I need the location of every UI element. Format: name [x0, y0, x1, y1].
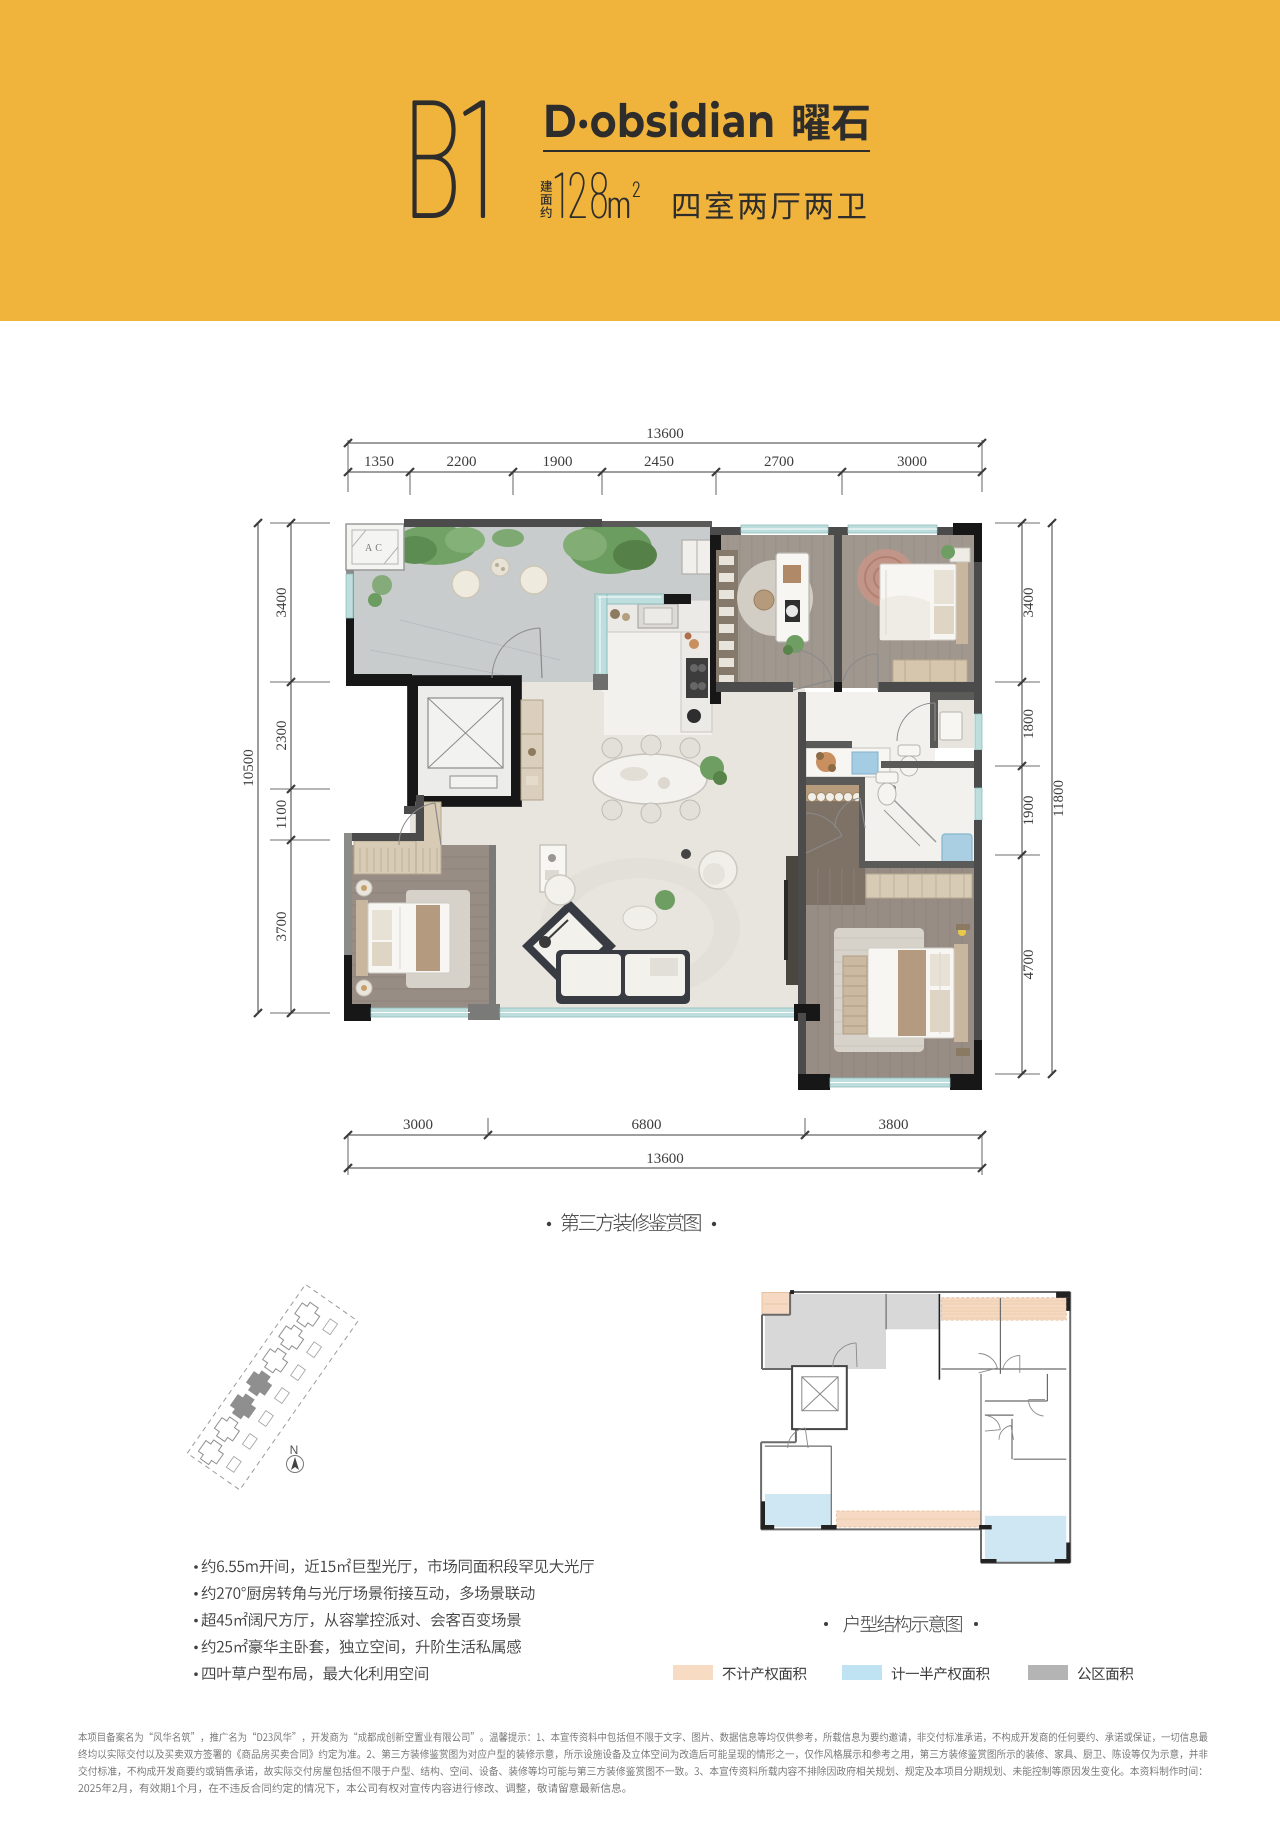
- svg-text:4700: 4700: [1021, 950, 1037, 980]
- svg-text:N: N: [290, 1443, 299, 1457]
- svg-text:3800: 3800: [879, 1117, 909, 1133]
- svg-text:2200: 2200: [447, 454, 477, 470]
- svg-text:3400: 3400: [1021, 588, 1037, 618]
- svg-text:6800: 6800: [632, 1117, 662, 1133]
- svg-text:3000: 3000: [897, 454, 927, 470]
- svg-text:13600: 13600: [646, 1151, 684, 1167]
- svg-text:3400: 3400: [274, 588, 290, 618]
- svg-text:AC: AC: [365, 543, 385, 554]
- svg-text:1800: 1800: [1021, 709, 1037, 739]
- svg-text:2300: 2300: [274, 721, 290, 751]
- svg-text:10500: 10500: [241, 749, 257, 787]
- svg-text:1900: 1900: [543, 454, 573, 470]
- svg-text:11800: 11800: [1051, 780, 1067, 817]
- svg-text:3000: 3000: [403, 1117, 433, 1133]
- svg-text:1100: 1100: [274, 800, 290, 829]
- svg-text:2450: 2450: [644, 454, 674, 470]
- svg-text:1350: 1350: [364, 454, 394, 470]
- svg-text:3700: 3700: [274, 912, 290, 942]
- svg-text:13600: 13600: [646, 426, 684, 442]
- svg-text:1900: 1900: [1021, 796, 1037, 826]
- svg-text:2700: 2700: [764, 454, 794, 470]
